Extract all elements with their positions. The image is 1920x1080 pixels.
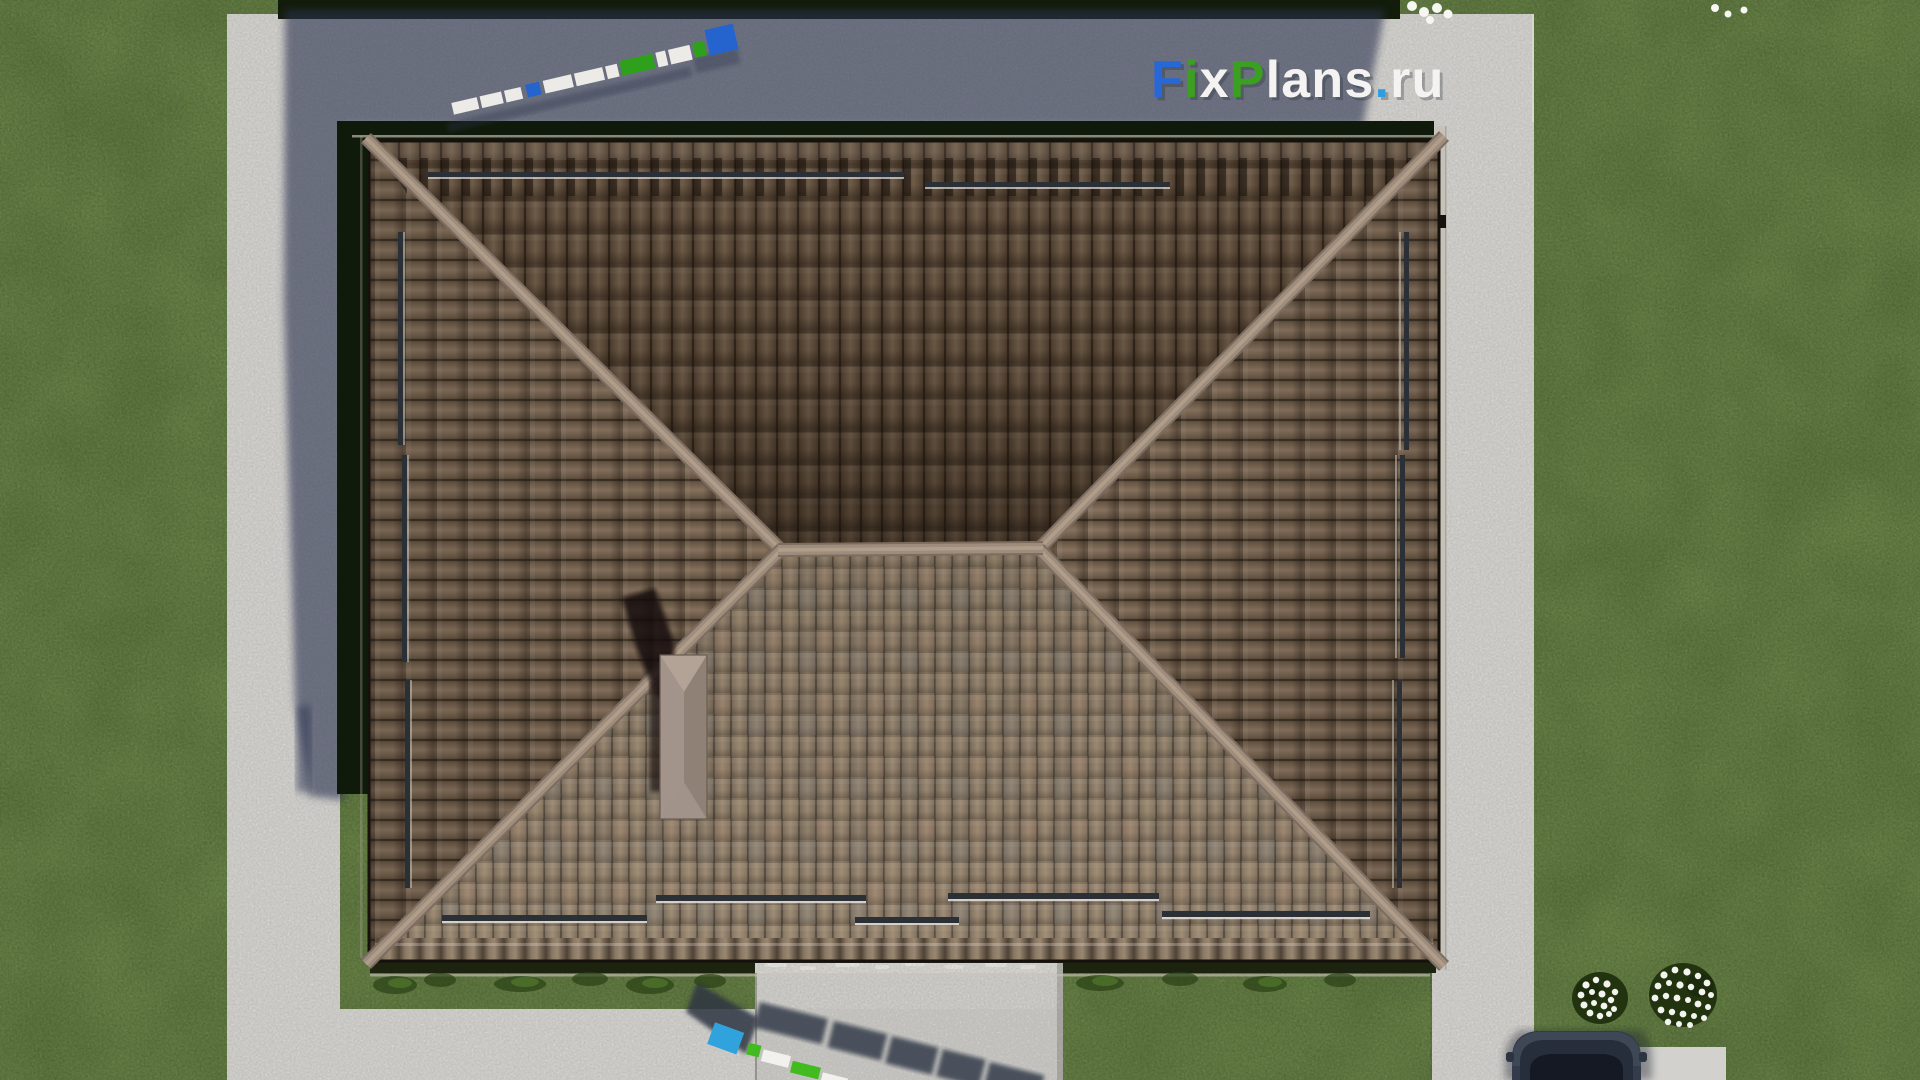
- svg-text:FixPlans.ru: FixPlans.ru: [1151, 51, 1445, 109]
